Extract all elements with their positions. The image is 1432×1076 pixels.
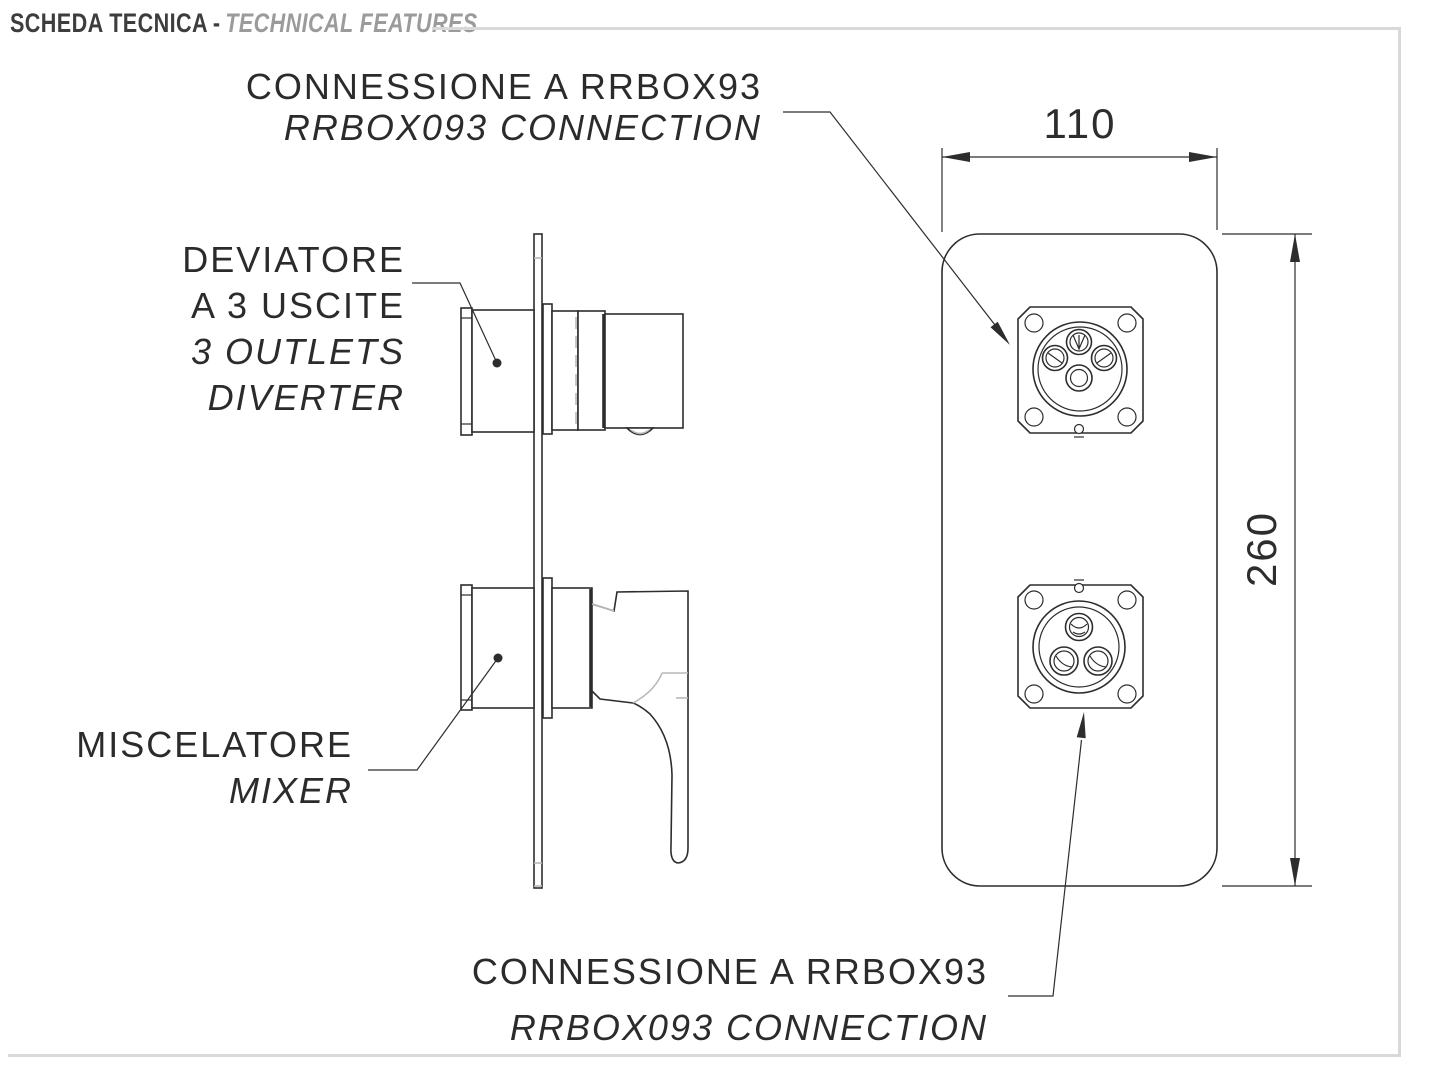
mixer-valve-side [461, 578, 688, 863]
diverter-escutcheon [543, 304, 552, 434]
mixer-trim-front [1018, 580, 1143, 708]
mixer-inwall-body [472, 588, 534, 708]
mixer-cap [552, 588, 592, 708]
dimension-height [1222, 234, 1312, 886]
mixer-handle [592, 591, 688, 863]
technical-sheet-page: SCHEDA TECNICA-TECHNICAL FEATURES CONNES… [0, 0, 1432, 1076]
diverter-union-fitting [461, 308, 472, 435]
mixer-trim-screw [1075, 584, 1084, 593]
dimension-width [942, 148, 1217, 232]
wall-plate-side [534, 234, 542, 888]
diverter-valve-side [461, 304, 683, 435]
diverter-trim-screw [1075, 425, 1084, 434]
diverter-ring2 [578, 311, 605, 430]
diverter-knob [605, 314, 683, 428]
mixer-union-fitting [461, 585, 472, 710]
diverter-cap-ring [552, 311, 578, 430]
mixer-escutcheon [543, 578, 552, 718]
front-view [942, 234, 1217, 886]
technical-drawing [0, 0, 1432, 1076]
diverter-trim-front [1018, 307, 1143, 437]
side-view [461, 234, 688, 888]
